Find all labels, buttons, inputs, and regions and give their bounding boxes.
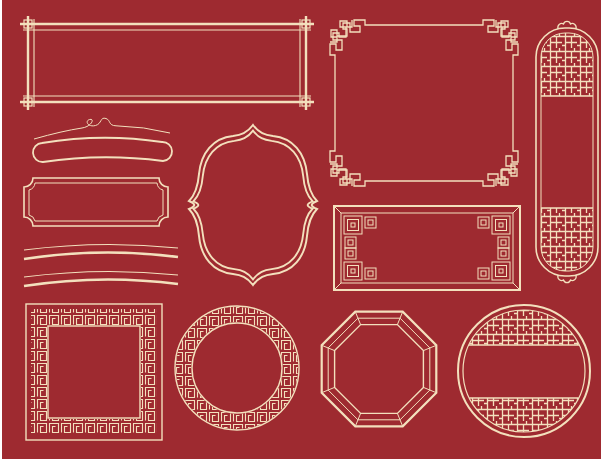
chinese-frame-set-illustration — [0, 0, 612, 461]
meander-corner-square-frame — [328, 18, 520, 188]
vertical-scroll-banner — [532, 18, 602, 290]
nested-square-corner-rectangle-frame — [332, 204, 522, 292]
lattice-circle-frame — [454, 301, 594, 441]
crossed-corner-rectangle-frame — [18, 14, 316, 112]
octagon-frame — [314, 304, 444, 434]
quatrefoil-frame — [186, 121, 320, 291]
ribbon-bar — [26, 112, 178, 168]
concave-corner-plaque-frame — [20, 174, 172, 230]
arc-dividers — [20, 238, 182, 294]
fret-border-circle-frame — [172, 303, 302, 433]
fret-border-square-frame — [24, 302, 164, 442]
